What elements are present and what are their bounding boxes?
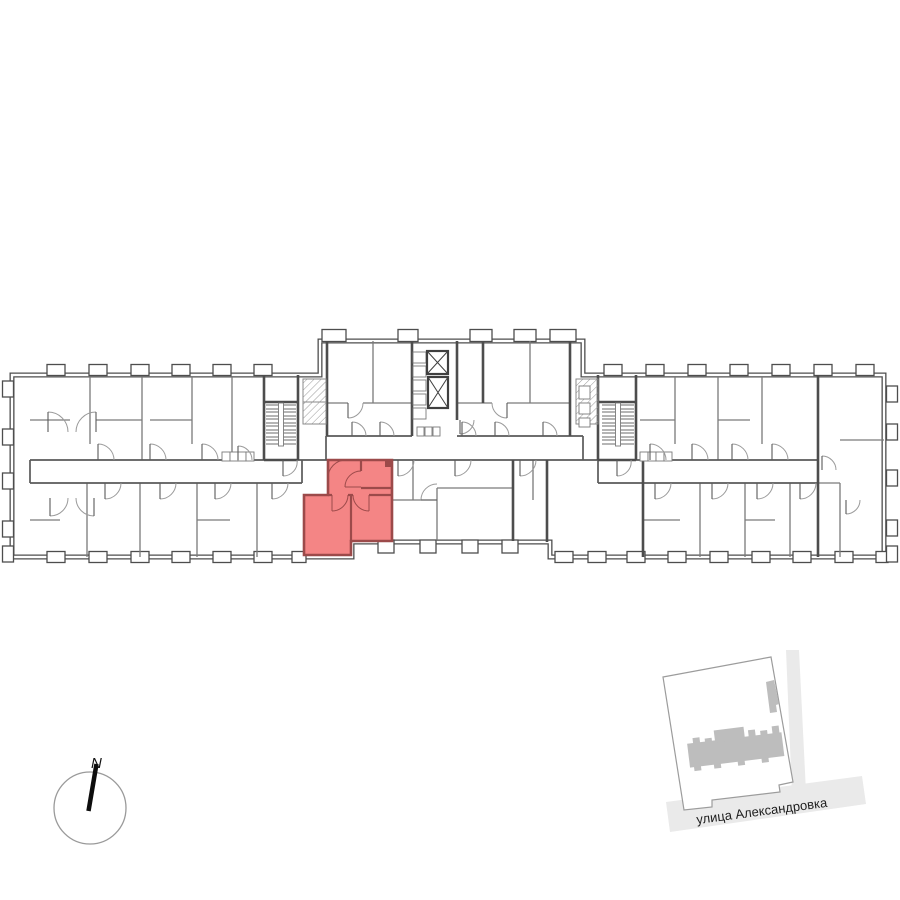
compass-north-label: N <box>91 755 102 772</box>
loggia-right <box>576 379 598 427</box>
location-minimap: улица Александровка <box>663 650 866 832</box>
compass: N <box>54 755 126 844</box>
floor-plan-page: N улица Александровка <box>0 0 900 900</box>
floor-plan-svg: N улица Александровка <box>0 0 900 900</box>
loggia-left <box>303 379 326 424</box>
closet-row-right <box>640 452 672 461</box>
building-plan <box>3 330 898 563</box>
selected-apartment-duct <box>385 461 391 467</box>
